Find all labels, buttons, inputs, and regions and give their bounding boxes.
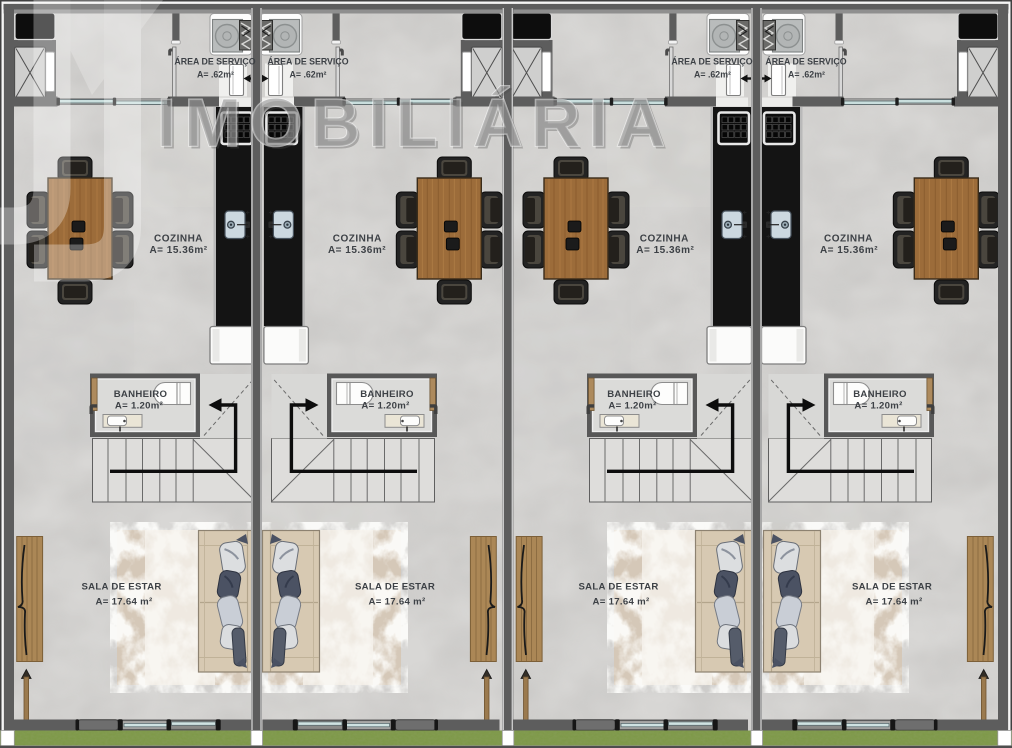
svg-text:SALA DE ESTAR: SALA DE ESTAR: [81, 582, 161, 593]
svg-text:A= 1.20m²: A= 1.20m²: [854, 401, 902, 412]
svg-text:COZINHA: COZINHA: [824, 234, 873, 245]
svg-text:ÁREA DE SERVIÇO: ÁREA DE SERVIÇO: [174, 57, 255, 67]
svg-text:BANHEIRO: BANHEIRO: [607, 389, 661, 400]
svg-text:COZINHA: COZINHA: [640, 234, 689, 245]
svg-text:IMOBILIÁRIA: IMOBILIÁRIA: [157, 85, 674, 161]
svg-text:A= 17.64 m²: A= 17.64 m²: [369, 597, 426, 608]
svg-text:A= .62m²: A= .62m²: [788, 70, 825, 80]
svg-text:BANHEIRO: BANHEIRO: [360, 389, 414, 400]
svg-text:ÁREA DE SERVIÇO: ÁREA DE SERVIÇO: [671, 57, 752, 67]
svg-text:A= 1.20m²: A= 1.20m²: [608, 401, 656, 412]
svg-text:A= 17.64 m²: A= 17.64 m²: [866, 597, 923, 608]
svg-text:SALA DE ESTAR: SALA DE ESTAR: [852, 582, 932, 593]
svg-text:A= .62m²: A= .62m²: [290, 70, 327, 80]
svg-text:A= 1.20m²: A= 1.20m²: [361, 401, 409, 412]
svg-text:A= 1.20m²: A= 1.20m²: [115, 401, 163, 412]
svg-text:COZINHA: COZINHA: [154, 234, 203, 245]
svg-text:ÁREA DE SERVIÇO: ÁREA DE SERVIÇO: [267, 57, 348, 67]
svg-text:COZINHA: COZINHA: [333, 234, 382, 245]
svg-text:A= 17.64 m²: A= 17.64 m²: [96, 597, 153, 608]
svg-text:SALA DE ESTAR: SALA DE ESTAR: [578, 582, 658, 593]
svg-text:SALA DE ESTAR: SALA DE ESTAR: [355, 582, 435, 593]
svg-text:A= .62m²: A= .62m²: [197, 70, 234, 80]
svg-text:A= 17.64 m²: A= 17.64 m²: [593, 597, 650, 608]
svg-text:ÁREA DE SERVIÇO: ÁREA DE SERVIÇO: [765, 57, 846, 67]
svg-text:A= 15.36m²: A= 15.36m²: [328, 245, 386, 256]
svg-text:A= 15.36m²: A= 15.36m²: [636, 245, 694, 256]
svg-text:A= 15.36m²: A= 15.36m²: [149, 245, 207, 256]
svg-text:BANHEIRO: BANHEIRO: [114, 389, 168, 400]
svg-text:A= 15.36m²: A= 15.36m²: [820, 245, 878, 256]
svg-text:BANHEIRO: BANHEIRO: [853, 389, 907, 400]
svg-text:A= .62m²: A= .62m²: [694, 70, 731, 80]
